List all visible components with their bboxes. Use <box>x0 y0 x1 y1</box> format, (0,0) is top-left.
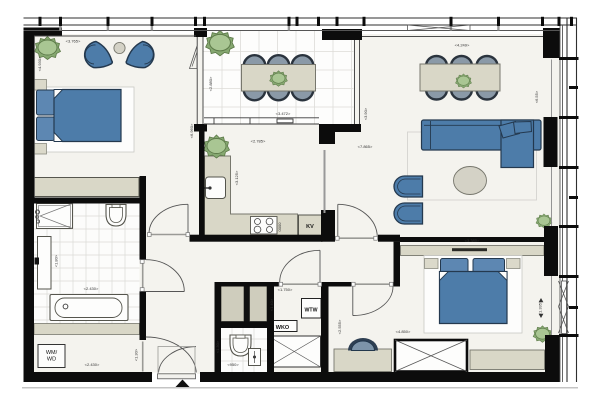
svg-text:<1.80>: <1.80> <box>54 254 59 267</box>
svg-text:<6.55>: <6.55> <box>534 90 539 103</box>
svg-text:<1.750>: <1.750> <box>278 287 293 292</box>
svg-text:<1.30>: <1.30> <box>134 348 139 361</box>
svg-text:<4.850>: <4.850> <box>396 329 411 334</box>
svg-text:<2.880>: <2.880> <box>208 76 213 91</box>
svg-text:<3.90>: <3.90> <box>363 107 368 120</box>
svg-text:<3.125>: <3.125> <box>234 170 239 185</box>
svg-text:<3.380>: <3.380> <box>465 238 480 243</box>
svg-text:<1.40>: <1.40> <box>269 298 274 311</box>
svg-text:WM/: WM/ <box>46 350 58 356</box>
svg-text:<1.30>: <1.30> <box>215 340 220 353</box>
svg-text:<4.930>: <4.930> <box>37 56 42 71</box>
svg-text:0000: 0000 <box>277 222 282 232</box>
svg-text:<3.765>: <3.765> <box>66 39 81 44</box>
svg-text:WTW: WTW <box>305 308 318 314</box>
svg-text:<4.249>: <4.249> <box>455 43 470 48</box>
svg-text:<2.785>: <2.785> <box>251 139 266 144</box>
svg-text:<2.430>: <2.430> <box>84 286 99 291</box>
svg-text:WD: WD <box>47 357 56 363</box>
svg-text:<2.555>: <2.555> <box>337 319 342 334</box>
svg-text:WKO: WKO <box>276 325 290 331</box>
svg-text:<7.865>: <7.865> <box>358 144 373 149</box>
svg-text:<6.960>: <6.960> <box>189 123 194 138</box>
svg-text:<950>: <950> <box>227 362 239 367</box>
svg-text:<1.335>: <1.335> <box>538 300 543 315</box>
svg-text:<3.472>: <3.472> <box>276 111 291 116</box>
svg-text:KV: KV <box>306 224 314 230</box>
svg-text:<2.430>: <2.430> <box>85 362 100 367</box>
